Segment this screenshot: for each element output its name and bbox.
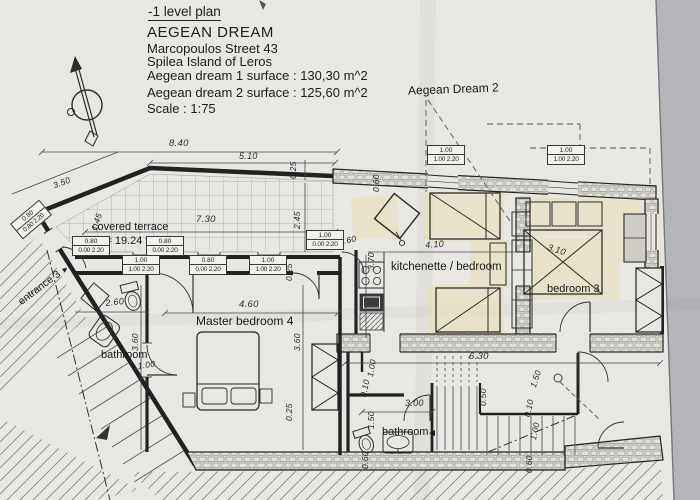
dim-label: 3.60 [131,333,140,351]
dim-label: 4.10 [425,240,444,250]
dim-label: 0.50 [479,388,488,406]
opening-tag-size: 1.00 [428,146,464,155]
floor-plan-photo: -1 level plan AEGEAN DREAM Marcopoulos S… [0,0,700,500]
dim-label: 1.00 [137,360,156,371]
opening-tag: 0.80 0.00 2.20 [189,255,227,275]
dim-label: 4.60 [239,300,259,310]
opening-tag-size: 1.00 [123,256,159,265]
bathroom-arrow-icon: ◄ [427,428,437,439]
dim-label: 0.60 [361,451,370,469]
master-bedroom-label: Master bedroom 4 [196,314,293,328]
opening-tag-detail: 1.00 2.20 [123,265,159,273]
dim-label: 0.25 [289,161,298,179]
project-location: Spilea Island of Leros [147,54,272,69]
opening-tag-detail: 1.00 2.20 [250,265,286,273]
opening-tag: 1.00 1.00 2.20 [427,145,465,165]
dim-label: 0.60 [372,174,381,192]
plan-level-title: -1 level plan [148,4,221,21]
opening-tag: 1.00 1.00 2.20 [547,145,585,165]
opening-tag-size: 1.00 [307,231,343,240]
opening-tag: 0.80 0.00 2.20 [146,236,184,256]
dim-label: 2.45 [293,211,302,229]
dim-label: 6.30 [469,352,489,362]
opening-tag-detail: 0.00 2.20 [190,265,226,273]
opening-tag-size: 0.80 [190,256,226,265]
dim-label: 3.00 [405,399,424,408]
opening-tag-size: 0.80 [73,237,109,246]
dim-label: 0.25 [285,403,294,421]
opening-tag-size: 1.00 [250,256,286,265]
opening-tag-detail: 0.00 2.20 [147,246,183,254]
covered-terrace-label: covered terrace [92,221,168,233]
opening-tag-size: 0.80 [147,237,183,246]
surface-2: Aegean dream 2 surface : 125,60 m^2 [147,85,368,100]
opening-tag-detail: 0.00 2.20 [73,246,109,254]
opening-tag: 1.00 1.00 2.20 [122,255,160,275]
bathroom-lower-label: bathroom [382,426,428,438]
opening-tag: 1.00 1.00 2.20 [249,255,287,275]
dim-label: 3.60 [293,333,302,351]
bathroom-upper-label: bathroom [101,349,147,361]
opening-tag: 0.80 0.00 2.20 [72,236,110,256]
opening-tag-detail: 0.00 2.20 [307,240,343,248]
opening-tag-size: 1.00 [548,146,584,155]
plan-scale: Scale : 1:75 [147,101,216,116]
opening-tag: 1.00 0.00 2.20 [306,230,344,250]
bedroom3-label: bedroom 3 [547,283,600,295]
closet-right [636,268,662,332]
project-name: AEGEAN DREAM [147,24,274,41]
surface-1: Aegean dream 1 surface : 130,30 m^2 [147,68,368,83]
opening-tag-detail: 1.00 2.20 [548,155,584,163]
dim-label: 7.30 [196,215,216,225]
dim-label: 1.50 [367,411,376,429]
dim-label: 3.70 [367,252,376,270]
dim-label: 5.10 [239,152,258,161]
dim-label: 8.40 [169,139,189,149]
opening-tag-detail: 1.00 2.20 [428,155,464,163]
kitchenette-label: kitchenette / bedroom [391,261,502,273]
dim-label: 0.60 [525,455,534,473]
